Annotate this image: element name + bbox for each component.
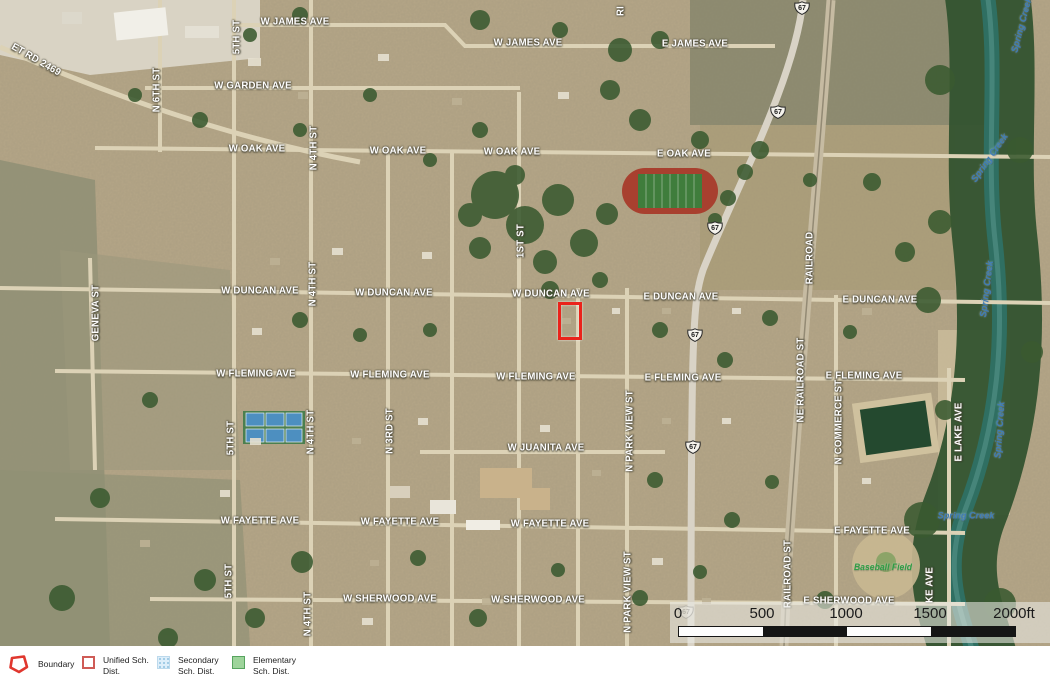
satellite-imagery	[0, 0, 1050, 646]
property-boundary	[558, 302, 582, 340]
scale-bar-track	[678, 626, 1016, 637]
scale-tick: 1500	[913, 605, 946, 622]
unified-district-swatch	[82, 656, 95, 669]
boundary-icon	[8, 655, 30, 674]
scale-segment	[763, 627, 847, 636]
map-page: { "map": { "highway_shields": { "route":…	[0, 0, 1050, 700]
legend-label: Secondary Sch. Dist.	[178, 655, 228, 677]
scale-end-label: 2000ft	[993, 605, 1035, 622]
scale-segment	[679, 627, 763, 636]
scale-segment	[847, 627, 931, 636]
legend-item-unified: Unified Sch. Dist.	[82, 655, 153, 677]
elementary-district-swatch	[232, 656, 245, 669]
legend: Boundary Unified Sch. Dist. Secondary Sc…	[0, 646, 1050, 700]
scale-tick: 1000	[829, 605, 862, 622]
legend-label: Boundary	[38, 659, 74, 670]
legend-label: Elementary Sch. Dist.	[253, 655, 303, 677]
scale-segment	[931, 627, 1015, 636]
scale-tick: 500	[749, 605, 774, 622]
satellite-map[interactable]: W JAMES AVEW JAMES AVEE JAMES AVEW GARDE…	[0, 0, 1050, 646]
legend-item-secondary: Secondary Sch. Dist.	[157, 655, 228, 677]
legend-item-elementary: Elementary Sch. Dist.	[232, 655, 303, 677]
scale-tick: 0	[674, 605, 682, 622]
legend-label: Unified Sch. Dist.	[103, 655, 153, 677]
spring-creek	[954, 0, 999, 646]
football-field	[622, 168, 718, 214]
scale-bar: 0 500 1000 1500 2000ft	[670, 602, 1050, 643]
baseball-field	[852, 531, 920, 599]
secondary-district-swatch	[157, 656, 170, 669]
pond	[852, 393, 940, 464]
legend-item-boundary: Boundary	[8, 655, 74, 674]
